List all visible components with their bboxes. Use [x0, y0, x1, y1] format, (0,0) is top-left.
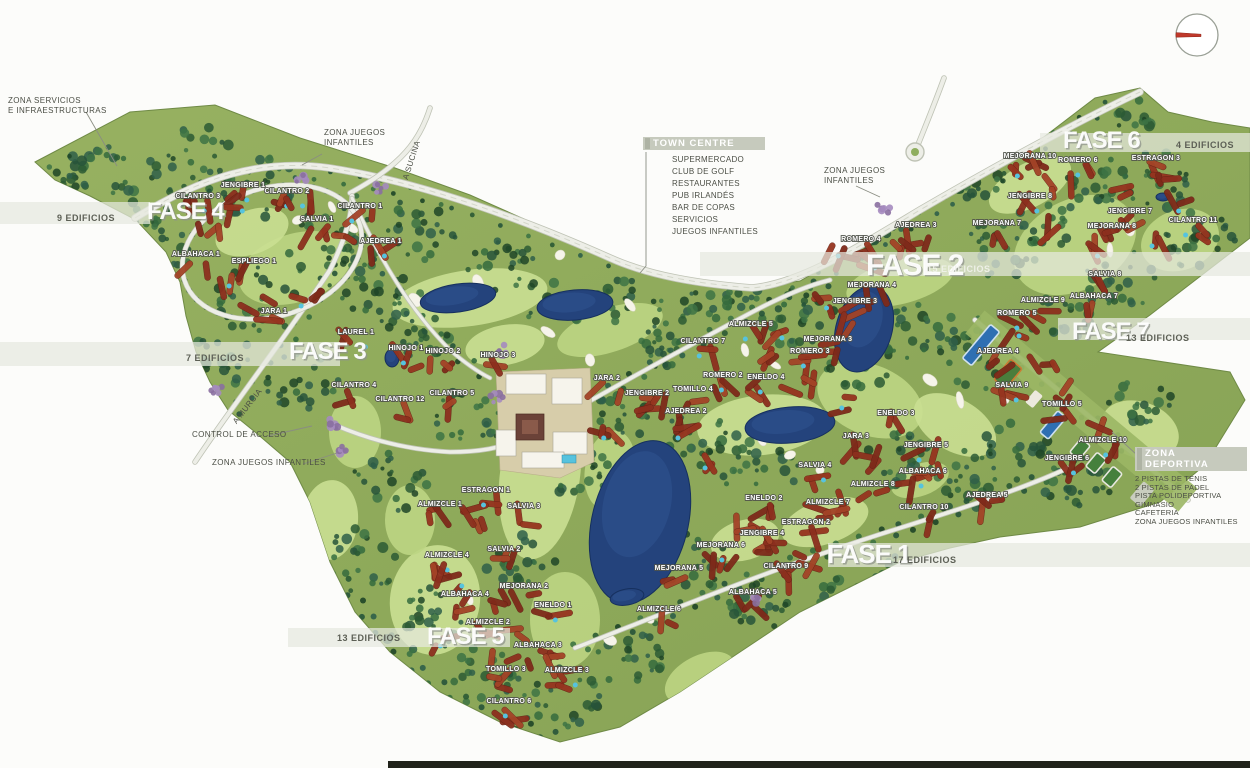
pool	[697, 354, 702, 359]
building-label: ALMIZCLE 8	[851, 481, 895, 488]
flower-trees	[491, 400, 495, 404]
building-label: JARA 3	[843, 433, 869, 440]
building-label: TOMILLO 5	[1042, 401, 1082, 408]
town-centre-item: BAR DE COPAS	[672, 202, 793, 214]
building-label: ENELDO 2	[745, 495, 782, 502]
pool	[382, 254, 387, 259]
building-label: JENGIBRE 1	[221, 182, 266, 189]
zona-servicios-line1: ZONA SERVICIOS	[8, 96, 81, 105]
building-cluster	[1037, 308, 1061, 314]
building-label: CILANTRO 9	[764, 563, 809, 570]
building-cluster	[696, 345, 718, 353]
building-label: ALMIZCLE 1	[418, 501, 462, 508]
phase-watermark: FASE 5	[427, 623, 504, 650]
phase-watermark: FASE 6	[1063, 127, 1140, 154]
zona-juegos-top-line2: INFANTILES	[324, 138, 374, 147]
phase-edificios-count: 13 EDIFICIOS	[337, 633, 401, 643]
building-label: ALBAHACA 7	[1070, 293, 1118, 300]
pool	[1150, 244, 1155, 249]
building-label: SALVIA 2	[487, 546, 520, 553]
pool	[779, 336, 784, 341]
zona-juegos-top-line1: ZONA JUEGOS	[324, 128, 385, 137]
town-centre-item: RESTAURANTES	[672, 178, 793, 190]
building-label: ROMERO 6	[1058, 157, 1098, 164]
building-label: SALVIA 4	[798, 462, 831, 469]
flower-trees	[343, 447, 349, 453]
pool	[1017, 334, 1022, 339]
building-label: ESTRAGON 1	[462, 487, 511, 494]
building-label: AJEDREA 5	[966, 492, 1008, 499]
pool	[601, 436, 606, 441]
pool	[1071, 471, 1076, 476]
building-label: TOMILLO 3	[486, 666, 526, 673]
building-cluster	[427, 355, 434, 374]
building-label: LAUREL 1	[338, 329, 375, 336]
town-centre-header: TOWN CENTRE	[643, 137, 765, 150]
building-label: ROMERO 4	[841, 236, 881, 243]
pool	[758, 390, 763, 395]
compass	[1176, 14, 1218, 56]
building-label: ESPLIEGO 1	[232, 258, 277, 265]
building-label: CILANTRO 4	[332, 382, 377, 389]
building-label: JENGIBRE 7	[1108, 208, 1153, 215]
building-label: ALBAHACA 1	[172, 251, 220, 258]
building-label: CILANTRO 11	[1169, 217, 1218, 224]
building-label: MEJORANA 3	[804, 336, 853, 343]
building-label: ALBAHACA 5	[729, 589, 777, 596]
building-cluster	[754, 549, 773, 556]
pool	[801, 364, 806, 369]
building-label: ESTRAGON 2	[782, 519, 831, 526]
pool	[719, 558, 724, 563]
pool	[300, 204, 305, 209]
pool	[824, 306, 829, 311]
building-label: JARA 1	[261, 308, 287, 315]
flower-trees	[501, 342, 508, 349]
building-label: CILANTRO 2	[265, 188, 310, 195]
zona-deportiva-header: ZONA DEPORTIVA	[1135, 447, 1247, 471]
building-cluster	[733, 513, 740, 542]
building-label: JENGIBRE 6	[1045, 455, 1090, 462]
flower-trees	[300, 172, 306, 178]
masterplan-map: JENGIBRE 1CILANTRO 3CILANTRO 2CILANTRO 1…	[0, 0, 1250, 768]
building-label: SALVIA 9	[995, 382, 1028, 389]
building-label: JENGIBRE 8	[1008, 193, 1053, 200]
building-label: AJEDREA 1	[360, 238, 402, 245]
building-label: ALMIZCLE 5	[729, 321, 773, 328]
building-label: CILANTRO 6	[487, 698, 532, 705]
building-label: MEJORANA 5	[655, 565, 704, 572]
pool	[1103, 453, 1108, 458]
flower-trees	[211, 390, 216, 395]
building-label: MEJORANA 2	[500, 583, 549, 590]
building-label: SALVIA 8	[1088, 271, 1121, 278]
building-label: ALMIZCLE 3	[545, 667, 589, 674]
town-centre-item: CLUB DE GOLF	[672, 166, 793, 178]
building-label: JENGIBRE 2	[625, 390, 670, 397]
masterplan-canvas: JENGIBRE 1CILANTRO 3CILANTRO 2CILANTRO 1…	[0, 0, 1250, 768]
building-label: ROMERO 2	[703, 372, 743, 379]
pool	[1034, 209, 1039, 214]
building-label: CILANTRO 7	[681, 338, 726, 345]
building-label: JARA 2	[594, 375, 620, 382]
pool	[553, 618, 558, 623]
town-centre-item: SUPERMERCADO	[672, 154, 793, 166]
pool	[459, 584, 464, 589]
building-label: MEJORANA 8	[1088, 223, 1137, 230]
building-label: AJEDREA 2	[665, 408, 707, 415]
pool	[573, 683, 578, 688]
town-centre-callout: TOWN CENTRE SUPERMERCADOCLUB DE GOLFREST…	[643, 137, 793, 238]
flower-trees	[374, 190, 379, 195]
flower-trees	[327, 420, 334, 427]
building-label: TOMILLO 4	[673, 386, 713, 393]
building-label: MEJORANA 6	[697, 542, 746, 549]
pool	[1075, 173, 1080, 178]
flower-trees	[214, 385, 220, 391]
pool	[743, 337, 748, 342]
town-centre-item: PUB IRLANDÉS	[672, 190, 793, 202]
pool	[401, 361, 406, 366]
building-label: JENGIBRE 5	[904, 442, 949, 449]
pool	[675, 436, 680, 441]
building-label: ALBAHACA 3	[514, 642, 562, 649]
flower-trees	[881, 205, 887, 211]
building-label: CILANTRO 10	[899, 504, 948, 511]
zona-juegos-right-label: ZONA JUEGOS INFANTILES	[824, 166, 885, 186]
building-label: HINOJO 1	[388, 345, 423, 352]
pool	[244, 198, 249, 203]
bottom-strip	[388, 761, 1250, 768]
building-label: ROMERO 5	[997, 310, 1037, 317]
zona-juegos-bottom-label: ZONA JUEGOS INFANTILES	[212, 458, 326, 468]
pool	[349, 219, 354, 224]
flower-trees	[375, 182, 380, 187]
phase-edificios-count: 7 EDIFICIOS	[186, 353, 244, 363]
building-label: SALVIA 1	[300, 216, 333, 223]
building-label: CILANTRO 12	[375, 396, 424, 403]
zona-servicios-label: ZONA SERVICIOS E INFRAESTRUCTURAS	[8, 96, 107, 116]
building-label: MEJORANA 7	[973, 220, 1022, 227]
zona-deportiva-list: 2 PISTAS DE TENIS2 PISTAS DE PADELPISTA …	[1135, 475, 1250, 527]
town-centre-item: JUEGOS INFANTILES	[672, 226, 793, 238]
building-cluster	[1068, 170, 1075, 199]
building-label: AJEDREA 4	[977, 348, 1019, 355]
building-label: CILANTRO 1	[338, 203, 383, 210]
building-label: ALMIZCLE 10	[1079, 437, 1127, 444]
building-label: ALMIZCLE 9	[1021, 297, 1065, 304]
zona-deportiva-item: ZONA JUEGOS INFANTILES	[1135, 518, 1250, 527]
flower-trees	[500, 394, 506, 400]
building-label: ALMIZCLE 6	[637, 606, 681, 613]
pool	[481, 503, 486, 508]
zona-juegos-right-line1: ZONA JUEGOS	[824, 166, 885, 175]
pool	[821, 478, 826, 483]
pool	[240, 209, 245, 214]
flower-trees	[295, 179, 299, 183]
pool	[1014, 398, 1019, 403]
building-label: ALMIZCLE 4	[425, 552, 469, 559]
building-label: ENELDO 3	[877, 410, 914, 417]
building-label: AJEDREA 3	[895, 222, 937, 229]
building-label: ALMIZCLE 7	[806, 499, 850, 506]
building-label: ESTRAGON 3	[1132, 155, 1181, 162]
building-label: JENGIBRE 4	[740, 530, 785, 537]
building-label: ENELDO 1	[534, 602, 571, 609]
phase-edificios-count: 13 EDIFICIOS	[1126, 333, 1190, 343]
pool	[227, 284, 232, 289]
control-acceso-label: CONTROL DE ACCESO	[192, 430, 287, 440]
pool	[703, 466, 708, 471]
sand-bunker	[604, 199, 617, 212]
pool	[719, 388, 724, 393]
phase-edificios-count: 4 EDIFICIOS	[1176, 140, 1234, 150]
building-label: ALBAHACA 6	[899, 468, 947, 475]
pool	[299, 304, 304, 309]
building-label: ENELDO 4	[747, 374, 784, 381]
flower-trees	[752, 599, 760, 607]
phase-watermark: FASE 3	[289, 338, 366, 365]
pool	[839, 406, 844, 411]
pool	[562, 455, 576, 463]
pool	[919, 484, 924, 489]
town-centre-item: SERVICIOS	[672, 214, 793, 226]
phase-watermark: FASE 4	[147, 198, 225, 225]
building-label: MEJORANA 10	[1004, 153, 1057, 160]
pool	[1015, 174, 1020, 179]
building-label: ALBAHACA 4	[441, 591, 489, 598]
town-centre-complex	[496, 368, 594, 478]
town-centre-list: SUPERMERCADOCLUB DE GOLFRESTAURANTESPUB …	[672, 154, 793, 238]
pool	[917, 458, 922, 463]
flower-trees	[487, 393, 494, 400]
building-label: CILANTRO 5	[430, 390, 475, 397]
pool	[1183, 233, 1188, 238]
building-label: HINOJO 2	[425, 348, 460, 355]
building-label: JENGIBRE 3	[833, 298, 878, 305]
phase-edificios-count: 9 EDIFICIOS	[57, 213, 115, 223]
zona-juegos-top-label: ZONA JUEGOS INFANTILES	[324, 128, 385, 148]
building-label: SALVIA 3	[507, 503, 540, 510]
pool	[1176, 209, 1181, 214]
flower-trees	[874, 202, 880, 208]
building-cluster	[841, 394, 857, 401]
building-label: HINOJO 3	[480, 352, 515, 359]
zona-juegos-right-line2: INFANTILES	[824, 176, 874, 185]
building-cluster	[490, 555, 511, 561]
building-label: ROMERO 3	[790, 348, 830, 355]
pool	[503, 714, 508, 719]
phase-edificios-count: 15 EDIFICIOS	[927, 264, 991, 274]
phase-edificios-count: 17 EDIFICIOS	[893, 555, 957, 565]
zona-servicios-line2: E INFRAESTRUCTURAS	[8, 106, 107, 115]
zona-deportiva-callout: ZONA DEPORTIVA 2 PISTAS DE TENIS2 PISTAS…	[1135, 447, 1250, 527]
